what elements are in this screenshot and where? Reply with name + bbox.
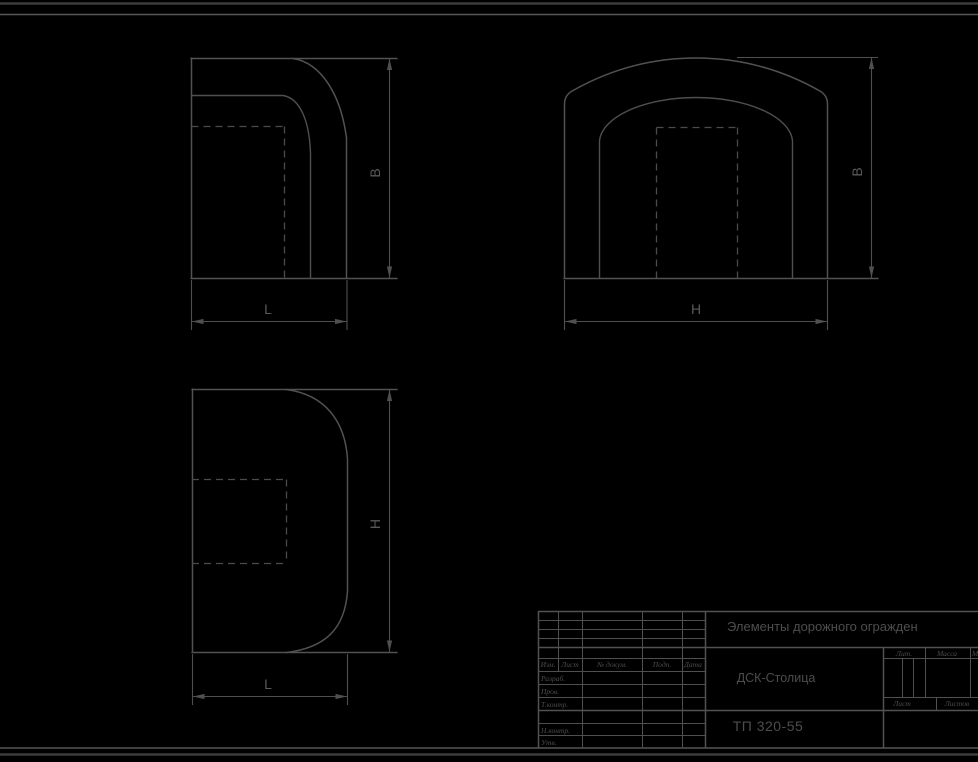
row-utv: Утв.: [541, 738, 557, 747]
side-view-dim-l-label: L: [264, 301, 272, 317]
label-lit: Лит.: [895, 649, 912, 658]
title-block-company: ДСК-Столица: [737, 671, 816, 685]
side-view-outer-curve: [293, 59, 347, 279]
title-block-doc-number: ТП 320-55: [733, 718, 804, 734]
drawing-canvas: B L B H: [0, 0, 978, 762]
plan-view-dim-h: H: [367, 390, 392, 653]
row-prov: Пров.: [540, 687, 559, 696]
plan-view-dim-h-label: H: [367, 519, 383, 529]
side-view-inner-curve: [192, 96, 311, 279]
label-list: Лист: [892, 699, 911, 708]
col-podp: Подп.: [652, 660, 672, 669]
side-view-dim-b: B: [367, 59, 392, 279]
plan-view: H L: [192, 389, 397, 705]
front-view-dim-h: H: [565, 280, 828, 330]
front-view-hidden-edge: [657, 128, 738, 279]
row-nkontr: Н.контр.: [540, 726, 570, 735]
plan-view-dim-l: L: [193, 654, 348, 705]
col-izm: Изм.: [540, 660, 556, 669]
title-block-revision-header: Изм. Лист № докум. Подп. Дата: [540, 660, 703, 669]
col-data: Дата: [683, 660, 702, 669]
side-view-hidden-edge: [192, 127, 285, 279]
front-view: B H: [564, 58, 878, 331]
side-view: B L: [191, 58, 397, 330]
title-block: Элементы дорожного огражден ДСК-Столица …: [538, 611, 978, 748]
label-listov: Листов: [944, 699, 970, 708]
title-block-project-title: Элементы дорожного огражден: [727, 619, 918, 634]
front-view-dim-b-label: B: [849, 167, 865, 176]
plan-view-outer-curve: [286, 390, 348, 653]
plan-view-hidden-edge: [192, 480, 287, 564]
col-doc: № докум.: [596, 660, 627, 669]
drawing-sheet: B L B H: [0, 0, 978, 762]
label-masshtab: Масштаб: [971, 649, 978, 658]
front-view-inner-arch: [600, 98, 793, 279]
front-view-outer-arch: [565, 58, 828, 278]
side-view-dim-b-label: B: [367, 168, 383, 177]
row-razrab: Разраб.: [540, 674, 565, 683]
label-massa: Масса: [936, 649, 957, 658]
side-view-dim-l: L: [192, 280, 348, 330]
plan-view-dim-l-label: L: [264, 676, 272, 692]
title-block-right-panel: Лит. Масса Масштаб Лист Листов: [892, 649, 978, 708]
col-list: Лист: [560, 660, 579, 669]
row-tkontr: Т.контр.: [541, 700, 568, 709]
front-view-dim-h-label: H: [691, 301, 701, 317]
front-view-dim-b: B: [737, 58, 878, 279]
sheet-frame: [0, 4, 978, 755]
